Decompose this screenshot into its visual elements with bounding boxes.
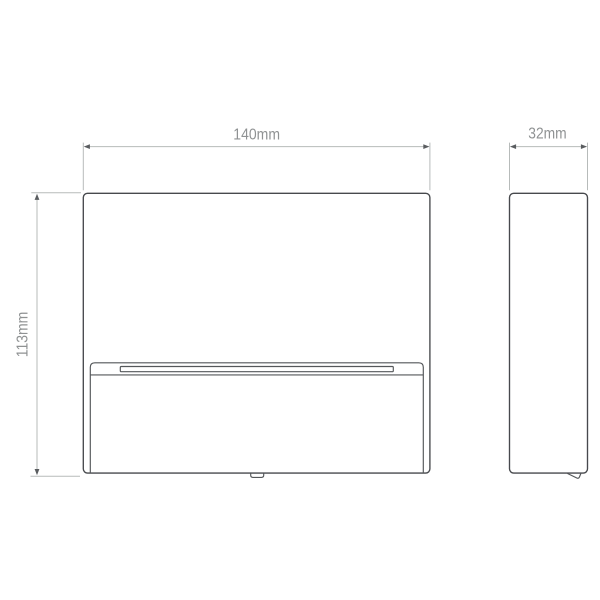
svg-text:113mm: 113mm (14, 312, 31, 358)
svg-text:32mm: 32mm (528, 126, 566, 143)
svg-text:140mm: 140mm (233, 126, 280, 143)
